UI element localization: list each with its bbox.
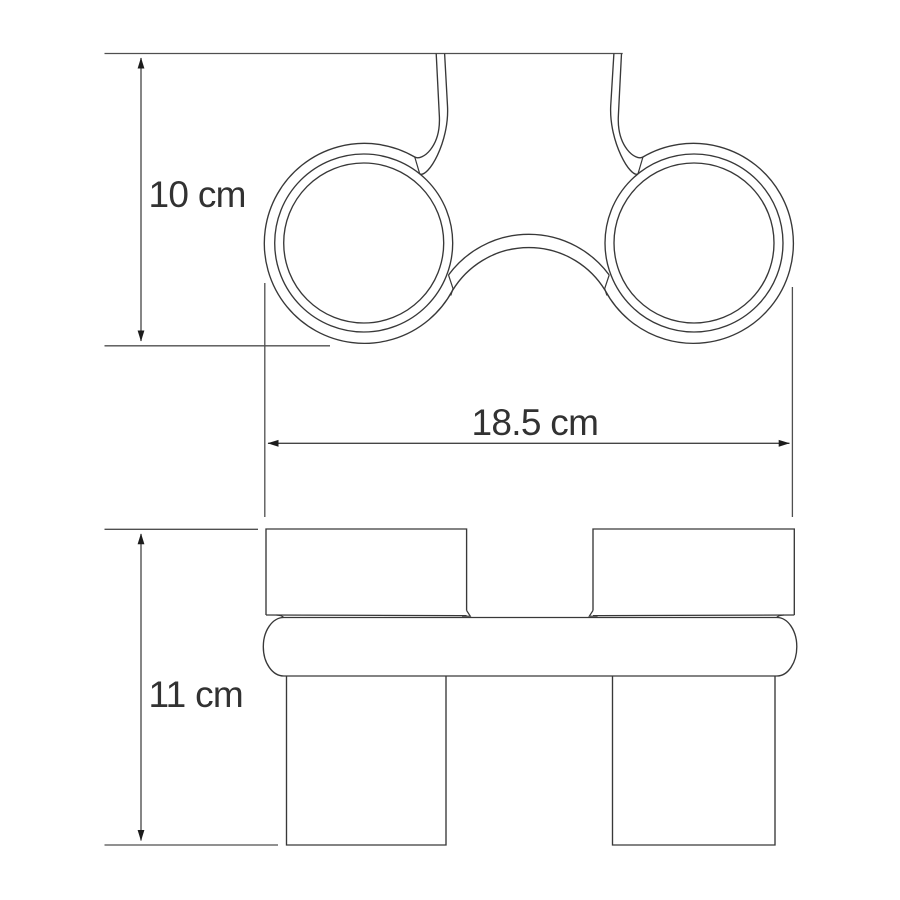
- svg-text:10 cm: 10 cm: [149, 174, 246, 215]
- svg-text:18.5 cm: 18.5 cm: [472, 402, 599, 443]
- svg-text:11 cm: 11 cm: [149, 674, 244, 715]
